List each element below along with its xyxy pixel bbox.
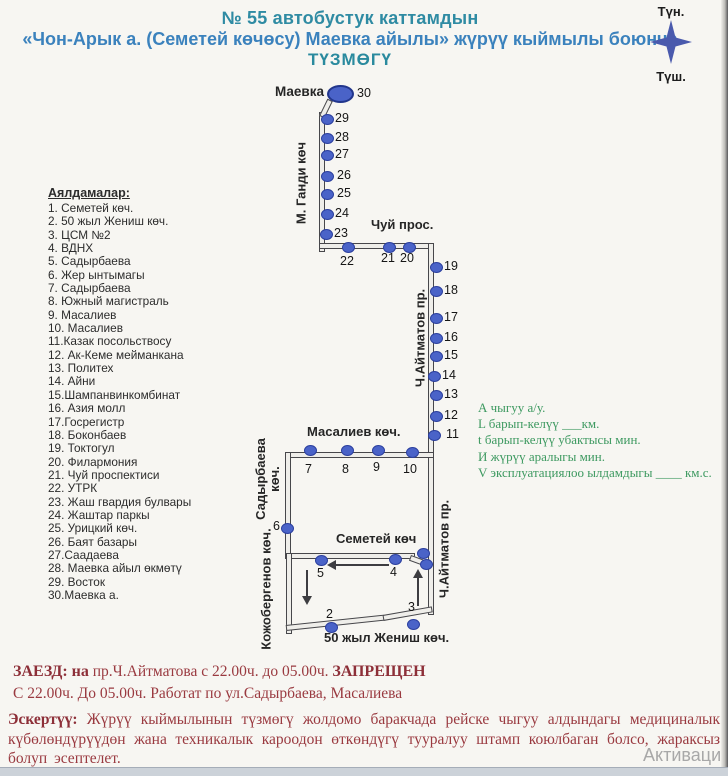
stop-number-label: 16: [444, 330, 458, 344]
list-item: 28. Маевка айыл өкмөтү: [48, 562, 191, 575]
route-stop-dot: [315, 555, 328, 566]
route-stop-dot: [321, 150, 334, 161]
list-item: 24. Жаштар паркы: [48, 509, 191, 522]
list-item: 15.Шампанвинкомбинат: [48, 389, 191, 402]
detour-notice-bold1: ЗАЕЗД: на: [13, 663, 89, 680]
street-label-chui: Чуй прос.: [371, 217, 433, 232]
stops-list-items: 1. Семетей көч.2. 50 жыл Жениш көч.3. ЦС…: [48, 202, 191, 602]
route-stop-dot: [281, 523, 294, 534]
stop-number-label: 29: [335, 111, 349, 125]
route-metric-line: L барып-келүү ___км.: [478, 416, 712, 432]
list-item: 19. Токтогул: [48, 442, 191, 455]
stop-number-label: 22: [340, 254, 354, 268]
stop-number-label: 7: [305, 462, 312, 476]
stop-number-label: 8: [342, 462, 349, 476]
stop-number-label: 25: [337, 186, 351, 200]
street-label-aitmatov-lower: Ч.Айтматов пр.: [437, 500, 452, 598]
street-label-sadyrbaeva-line2: көч.: [267, 466, 282, 492]
list-item: 11.Казак посольствосу: [48, 335, 191, 348]
detour-notice-mid: пр.Ч.Айтматова с 22.00ч. до 05.00ч.: [89, 663, 332, 680]
route-stop-dot: [389, 554, 402, 565]
route-stop-dot: [428, 430, 441, 441]
stop-number-label: 14: [442, 368, 456, 382]
road-chui: [319, 243, 434, 249]
route-stop-dot: [325, 622, 338, 633]
route-stop-dot: [304, 445, 317, 456]
route-stop-dot: [430, 351, 443, 362]
list-item: 13. Политех: [48, 362, 191, 375]
route-stop-dot: [341, 445, 354, 456]
list-item: 21. Чуй проспектиси: [48, 469, 191, 482]
list-item: 25. Урицкий көч.: [48, 522, 191, 535]
list-item: 29. Восток: [48, 576, 191, 589]
list-item: 30.Маевка а.: [48, 589, 191, 602]
street-label-semetei: Семетей көч: [336, 531, 416, 546]
title-line-3: ТҮЗМӨГҮ: [0, 50, 700, 70]
arrow-up-shaft: [417, 578, 419, 606]
route-stop-dot: [428, 371, 441, 382]
list-item: 4. ВДНХ: [48, 242, 191, 255]
footer-warning-text: Жүрүү кыймылынын түзмөгү жолдомо баракча…: [8, 711, 720, 767]
route-stop-dot: [420, 559, 433, 570]
route-stop-dot: [430, 262, 443, 273]
list-item: 3. ЦСМ №2: [48, 229, 191, 242]
footer-warning-paragraph: Эскертүү: Жүрүү кыймылынын түзмөгү жолдо…: [8, 710, 720, 769]
list-item: 17.Госрегистр: [48, 416, 191, 429]
route-stop-dot: [430, 411, 443, 422]
list-item: 12. Ак-Кеме мейманкана: [48, 349, 191, 362]
list-item: 20. Филармония: [48, 456, 191, 469]
stop-number-label: 20: [400, 251, 414, 265]
stop-number-label: 13: [444, 387, 458, 401]
route-stop-dot: [430, 286, 443, 297]
stop-number-label: 24: [335, 206, 349, 220]
route-metric-line: V эксплуатациялоо ылдамдыгы ____ км.с.: [478, 465, 712, 481]
route-stop-dot: [321, 171, 334, 182]
list-item: 23. Жаш гвардия булвары: [48, 496, 191, 509]
list-item: 18. Боконбаев: [48, 429, 191, 442]
list-item: 8. Южный магистраль: [48, 295, 191, 308]
list-item: 27.Саадаева: [48, 549, 191, 562]
stop-number-label: 26: [337, 168, 351, 182]
scanned-route-document: № 55 автобустук каттамдын «Чон-Арык а. (…: [0, 0, 728, 776]
route-stop-dot: [417, 548, 430, 559]
stop-number-label: 21: [381, 251, 395, 265]
route-stop-dot: [321, 189, 334, 200]
terminal-dot: [327, 85, 354, 103]
arrow-west-head: [327, 560, 336, 570]
activation-watermark: Активаци: [643, 745, 721, 766]
stop-number-label: 27: [335, 147, 349, 161]
route-stop-dot: [430, 390, 443, 401]
list-item: 5. Садырбаева: [48, 255, 191, 268]
list-item: 6. Жер ынтымагы: [48, 269, 191, 282]
stop-number-label: 19: [444, 259, 458, 273]
stop-number-label: 3: [408, 600, 415, 614]
stop-number-label: 23: [334, 226, 348, 240]
street-label-zhenish: 50 жыл Жениш көч.: [324, 630, 449, 645]
street-label-kozhobergenov: Кожобергенов көч.: [259, 528, 274, 649]
stop-number-label: 5: [317, 566, 324, 580]
route-stop-dot: [430, 313, 443, 324]
route-stop-dot: [430, 333, 443, 344]
route-stop-dot: [407, 619, 420, 630]
list-item: 7. Садырбаева: [48, 282, 191, 295]
list-item: 26. Баят базары: [48, 536, 191, 549]
street-label-masaliev: Масалиев көч.: [307, 424, 401, 439]
street-label-gandhi: М. Ганди көч: [294, 142, 309, 224]
stop-number-label: 12: [444, 408, 458, 422]
scan-edge-bottom: [0, 767, 728, 776]
road-sadyrbaeva: [285, 452, 291, 559]
route-metric-line: t барып-келүү убактысы мин.: [478, 432, 712, 448]
stop-number-label: 6: [273, 519, 280, 533]
compass-north-label: Түн.: [648, 4, 694, 19]
route-stop-dot: [406, 447, 419, 458]
stop-number-label: 2: [326, 607, 333, 621]
list-item: 2. 50 жыл Жениш көч.: [48, 215, 191, 228]
scan-edge-right: [721, 0, 728, 776]
compass-south-label: Түш.: [648, 69, 694, 84]
title-line-2: «Чон-Арык а. (Семетей көчөсу) Маевка айы…: [0, 29, 700, 50]
route-stop-dot: [321, 133, 334, 144]
route-metric-line: И жүрүү аралыгы мин.: [478, 449, 712, 465]
stop-number-label: 10: [403, 462, 417, 476]
list-item: 16. Азия молл: [48, 402, 191, 415]
stop-number-label: 15: [444, 348, 458, 362]
arrow-down-head: [302, 596, 312, 605]
arrow-up-head: [413, 569, 423, 578]
list-item: 9. Масалиев: [48, 309, 191, 322]
footer-warning-bold: Эскертүү:: [8, 711, 78, 728]
list-item: 22. УТРК: [48, 482, 191, 495]
arrow-down-shaft: [306, 570, 308, 597]
street-label-sadyrbaeva: Садырбаева көч.: [254, 438, 282, 520]
terminal-number-label: 30: [357, 86, 371, 100]
detour-notice-line1: ЗАЕЗД: на пр.Ч.Айтматова с 22.00ч. до 05…: [13, 663, 426, 681]
route-stop-dot: [372, 445, 385, 456]
detour-notice-line2: С 22.00ч. До 05.00ч. Работат по ул.Садыр…: [13, 685, 402, 703]
compass-star-icon: [648, 18, 694, 66]
stop-number-label: 17: [444, 310, 458, 324]
list-item: 10. Масалиев: [48, 322, 191, 335]
stops-list-title: Аялдамалар:: [48, 186, 130, 200]
arrow-west-shaft: [336, 564, 389, 566]
detour-notice-bold2: ЗАПРЕЩЕН: [332, 663, 425, 680]
list-item: 14. Айни: [48, 375, 191, 388]
road-kozhobergenov: [286, 553, 292, 634]
route-metrics-notes: А чыгуу а/у.L барып-келүү ___км.t барып-…: [478, 400, 712, 481]
stop-number-label: 4: [390, 565, 397, 579]
street-label-aitmatov-upper: Ч.Айтматов пр.: [413, 289, 428, 387]
list-item: 1. Семетей көч.: [48, 202, 191, 215]
route-stop-dot: [342, 242, 355, 253]
stop-number-label: 9: [373, 460, 380, 474]
route-stop-dot: [320, 229, 333, 240]
route-stop-dot: [321, 209, 334, 220]
route-stop-dot: [321, 114, 334, 125]
stop-number-label: 18: [444, 283, 458, 297]
stop-number-label: 28: [335, 130, 349, 144]
street-label-sadyrbaeva-line1: Садырбаева: [253, 438, 268, 520]
title-line-1: № 55 автобустук каттамдын: [0, 8, 700, 29]
route-metric-line: А чыгуу а/у.: [478, 400, 712, 416]
stop-number-label: 11: [446, 427, 459, 441]
